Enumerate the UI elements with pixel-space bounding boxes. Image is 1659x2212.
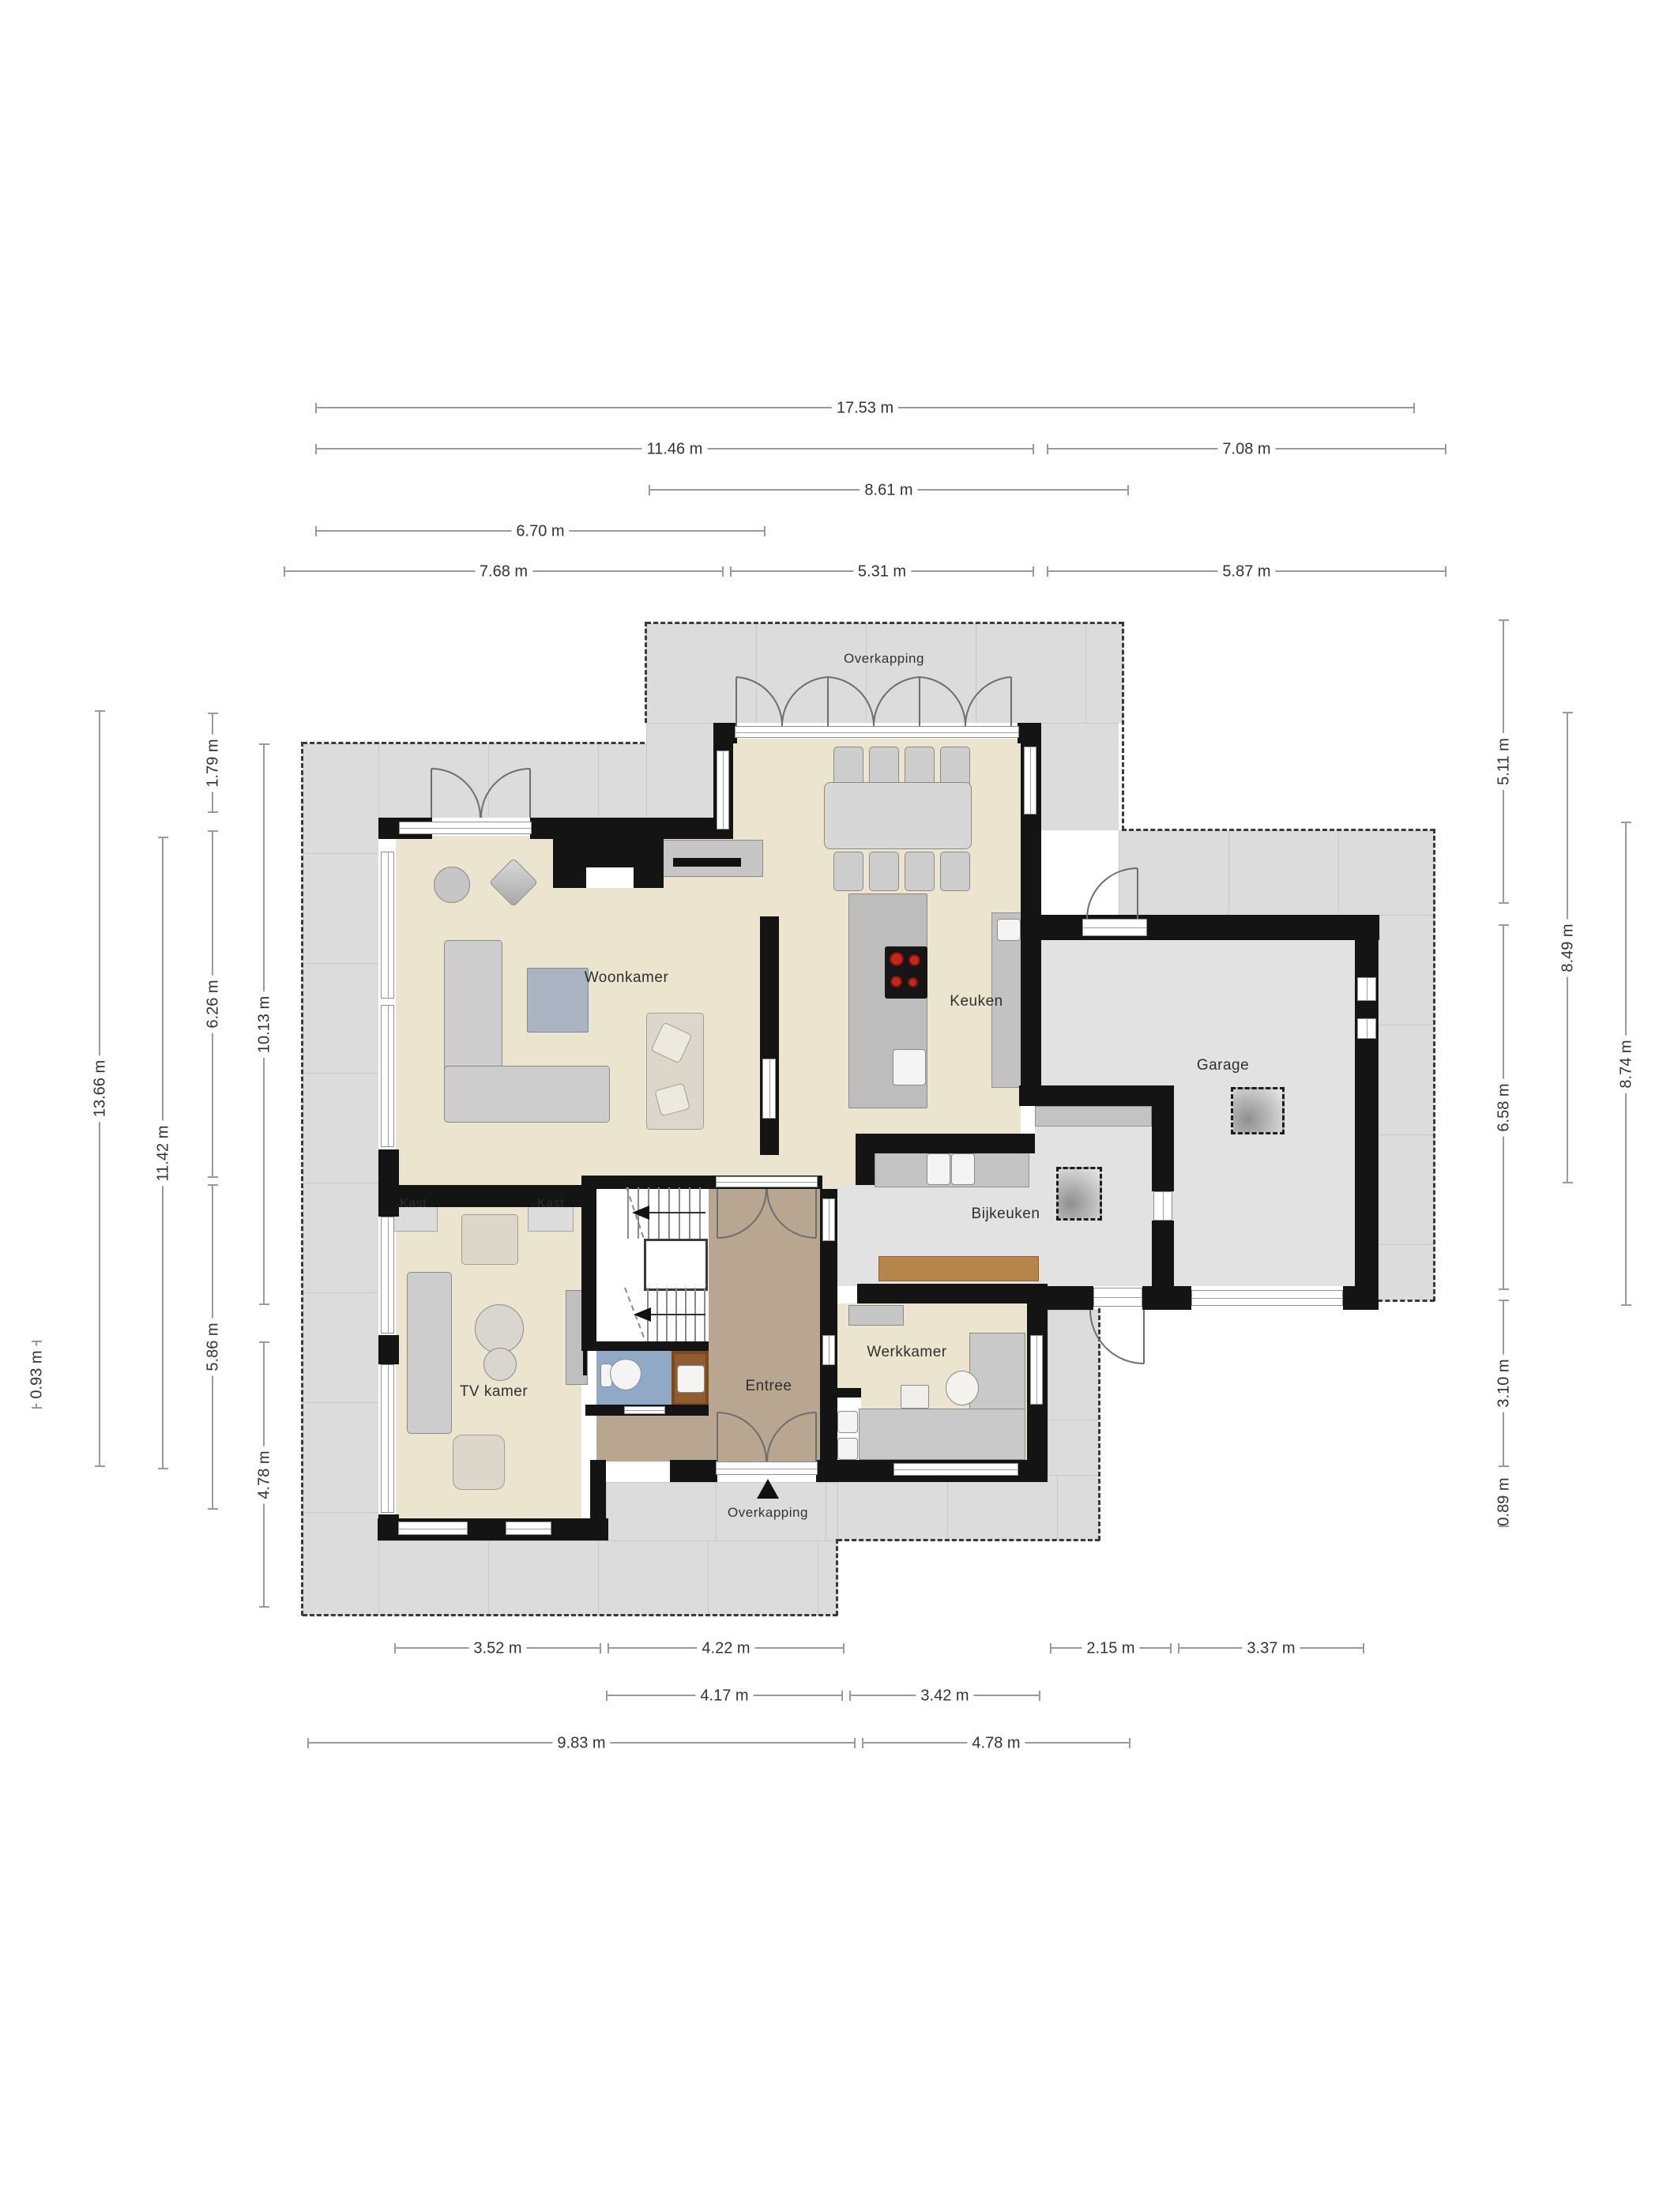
dimension-left-6: 10.13 m	[263, 744, 265, 1304]
dimension-left-7: 4.78 m	[263, 1342, 265, 1607]
window-entree-right-2	[822, 1335, 835, 1365]
dimension-top-1: 17.53 m	[316, 407, 1414, 408]
label-overkapping-top: Overkapping	[844, 651, 924, 667]
burner	[908, 954, 920, 966]
label-werkkamer: Werkkamer	[867, 1344, 946, 1361]
dashed-border	[837, 1539, 1100, 1541]
bijkeuken-floor-3	[837, 1185, 875, 1286]
wall	[378, 1335, 399, 1364]
dimension-bottom-1: 3.52 m	[395, 1647, 600, 1649]
dashed-border	[645, 622, 647, 723]
wall	[1343, 1286, 1379, 1310]
window-kitchen-top	[735, 726, 1019, 738]
dashed-border	[1378, 1300, 1435, 1302]
front-door-opening	[716, 1461, 818, 1475]
terrace-right-of-werkkamer	[1048, 1310, 1100, 1475]
label-bijkeuken: Bijkeuken	[972, 1206, 1040, 1223]
wall	[530, 818, 733, 839]
garage-window-right-2	[1357, 1018, 1376, 1039]
meter-fixture-2	[837, 1438, 858, 1460]
bijkeuken-garage-door	[1153, 1191, 1172, 1221]
fireplace-notch	[586, 867, 634, 888]
dimension-top-7: 5.31 m	[731, 570, 1033, 572]
burner	[890, 976, 902, 987]
wall	[581, 1176, 596, 1351]
dashed-border	[836, 1539, 838, 1616]
dining-chair	[869, 747, 899, 786]
dimension-bottom-5: 4.17 m	[607, 1695, 842, 1696]
armchair-bottom	[453, 1435, 505, 1490]
terrace-kitchen-right-corner	[1033, 723, 1119, 830]
terrace-above-garage	[1119, 830, 1435, 915]
dimension-bottom-2: 4.22 m	[608, 1647, 844, 1649]
dimension-bottom-3: 2.15 m	[1051, 1647, 1171, 1649]
wall	[1142, 1286, 1191, 1310]
vanity-sink	[677, 1365, 705, 1393]
dimension-right-4: 0.89 m	[1503, 1477, 1504, 1526]
label-woonkamer: Woonkamer	[585, 969, 669, 987]
wall	[760, 916, 779, 1155]
entrance-arrow	[757, 1479, 779, 1499]
bijkeuken-ext-door	[1093, 1288, 1142, 1307]
wall	[378, 1149, 399, 1217]
wall	[713, 723, 737, 743]
wall	[856, 1134, 1035, 1153]
bijkeuken-skylight	[1056, 1167, 1102, 1221]
island-sink	[893, 1049, 926, 1085]
window-woonkamer-right	[762, 1059, 776, 1119]
terrace-left-strip	[303, 743, 378, 1616]
dashed-border	[1122, 829, 1435, 831]
wall	[1048, 1286, 1093, 1310]
label-kast-1: Kast	[400, 1197, 427, 1211]
dimension-left-5: 5.86 m	[212, 1185, 213, 1509]
faucet-icon	[997, 919, 1021, 941]
dimension-left-2: 11.42 m	[162, 837, 164, 1469]
garage-skylight	[1231, 1087, 1285, 1134]
terrace-bottom-left	[378, 1540, 837, 1616]
dimension-left-3: 1.79 m	[212, 713, 213, 812]
floorplan-canvas: Overkapping Woonkamer Keuken Garage Bijk…	[0, 0, 1659, 2212]
dimension-left-1: 13.66 m	[99, 711, 100, 1466]
dimension-right-5: 8.49 m	[1567, 713, 1568, 1183]
dining-chair	[905, 747, 935, 786]
window-kitchen-right	[1024, 747, 1036, 814]
toilet-glass	[624, 1406, 665, 1414]
armchair-top	[461, 1214, 518, 1265]
dashed-border	[1098, 1301, 1100, 1540]
wall	[1018, 723, 1041, 743]
window-tvkamer-left-1	[381, 1217, 394, 1334]
window-woonkamer-top	[399, 822, 532, 834]
burner	[908, 977, 918, 987]
window-entree-right-1	[822, 1198, 835, 1241]
bijkeuken-bench	[878, 1256, 1039, 1281]
window-tvkamer-left-2	[381, 1364, 394, 1513]
bijkeuken-sink-right	[951, 1153, 975, 1185]
window-woonkamer-left-2	[381, 1005, 394, 1147]
terrace-top-left	[378, 743, 646, 818]
burner	[890, 952, 904, 966]
window-werkkamer-right	[1030, 1335, 1043, 1405]
dimension-top-5: 6.70 m	[316, 530, 765, 532]
wall	[378, 1514, 399, 1540]
dimension-bottom-7: 9.83 m	[308, 1742, 855, 1744]
wall	[1152, 1221, 1174, 1290]
corner-sofa-horizontal	[444, 1066, 610, 1123]
dimension-bottom-8: 4.78 m	[863, 1742, 1130, 1744]
dimension-right-3: 3.10 m	[1503, 1300, 1504, 1466]
wall	[670, 1460, 717, 1482]
desk-item	[901, 1385, 929, 1409]
window-tvkamer-bottom-1	[398, 1522, 468, 1535]
bijkeuken-counter-2	[1035, 1106, 1152, 1127]
label-tvkamer: TV kamer	[460, 1383, 528, 1401]
meter-fixture-1	[837, 1411, 858, 1433]
side-table-round	[434, 867, 470, 903]
dimension-left-4: 6.26 m	[212, 831, 213, 1177]
entree-floor-2	[596, 1416, 709, 1461]
dashed-border	[646, 622, 1123, 624]
wall	[590, 1460, 606, 1520]
window-tvkamer-bottom-2	[506, 1522, 551, 1535]
label-kast-2: Kast	[537, 1197, 564, 1211]
dining-chair	[833, 852, 863, 891]
round-table-large	[475, 1304, 524, 1353]
label-overkapping-bottom: Overkapping	[728, 1505, 808, 1521]
dining-chair	[940, 747, 970, 786]
entree-floor	[709, 1189, 820, 1461]
tv-screen	[673, 858, 741, 867]
wall	[1152, 1106, 1174, 1191]
dimension-top-4: 8.61 m	[649, 489, 1128, 491]
wall	[585, 1341, 709, 1351]
terrace-right-strip	[1379, 915, 1435, 1301]
dimension-right-6: 8.74 m	[1625, 822, 1627, 1305]
dimension-top-3: 7.08 m	[1048, 448, 1446, 450]
desk-chair	[946, 1371, 979, 1405]
dining-chair	[869, 852, 899, 891]
label-garage: Garage	[1197, 1057, 1249, 1074]
entree-north-opening	[716, 1176, 818, 1187]
coffee-table	[527, 968, 589, 1033]
dimension-right-1: 5.11 m	[1503, 620, 1504, 903]
stair-void	[644, 1239, 708, 1291]
dimension-left-8: 0.93 m	[36, 1341, 37, 1408]
dimension-bottom-6: 3.42 m	[850, 1695, 1040, 1696]
terrace-below-werkkamer	[837, 1475, 1100, 1540]
dining-chair	[905, 852, 935, 891]
window-werkkamer-bottom	[893, 1463, 1018, 1476]
dashed-border	[303, 1614, 837, 1616]
dimension-bottom-4: 3.37 m	[1179, 1647, 1364, 1649]
dining-table	[824, 782, 972, 849]
dashed-border	[301, 742, 303, 1616]
dimension-top-8: 5.87 m	[1048, 570, 1446, 572]
dining-chair	[833, 747, 863, 786]
desk-return	[859, 1409, 1025, 1460]
garage-door-top	[1082, 919, 1147, 936]
tvkamer-sofa	[407, 1272, 452, 1434]
dimension-top-6: 7.68 m	[284, 570, 723, 572]
wall	[1019, 1085, 1174, 1106]
label-keuken: Keuken	[950, 993, 1003, 1010]
wall	[856, 1134, 875, 1185]
dashed-border	[1433, 829, 1435, 1301]
wall	[833, 1388, 861, 1398]
window-kitchen-left	[717, 750, 729, 829]
label-entree: Entree	[746, 1378, 792, 1395]
dashed-border	[1122, 622, 1124, 830]
garage-window-bottom	[1191, 1290, 1343, 1306]
dashed-border	[303, 742, 645, 744]
window-woonkamer-left-1	[381, 852, 394, 999]
dimension-right-2: 6.58 m	[1503, 925, 1504, 1289]
round-table-small	[483, 1348, 517, 1381]
wall	[857, 1284, 1048, 1303]
werkkamer-cabinet	[848, 1305, 904, 1326]
terrace-overkapping-top	[646, 623, 1123, 723]
dining-chair	[940, 852, 970, 891]
terrace-connector	[646, 723, 713, 818]
dimension-top-2: 11.46 m	[316, 448, 1033, 450]
garage-window-right-1	[1357, 977, 1376, 1001]
bijkeuken-sink-left	[927, 1153, 950, 1185]
